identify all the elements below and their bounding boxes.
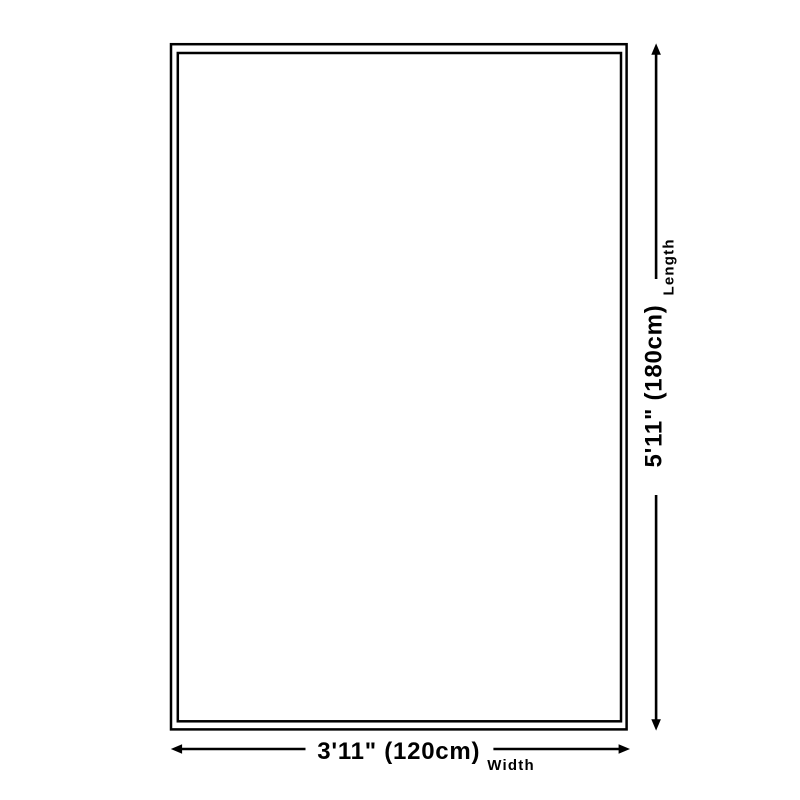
svg-text:5'11" (180cm): 5'11" (180cm) [641,305,668,468]
svg-text:Width: Width [487,757,535,774]
svg-text:Length: Length [661,238,678,295]
svg-text:3'11" (120cm): 3'11" (120cm) [317,738,480,765]
